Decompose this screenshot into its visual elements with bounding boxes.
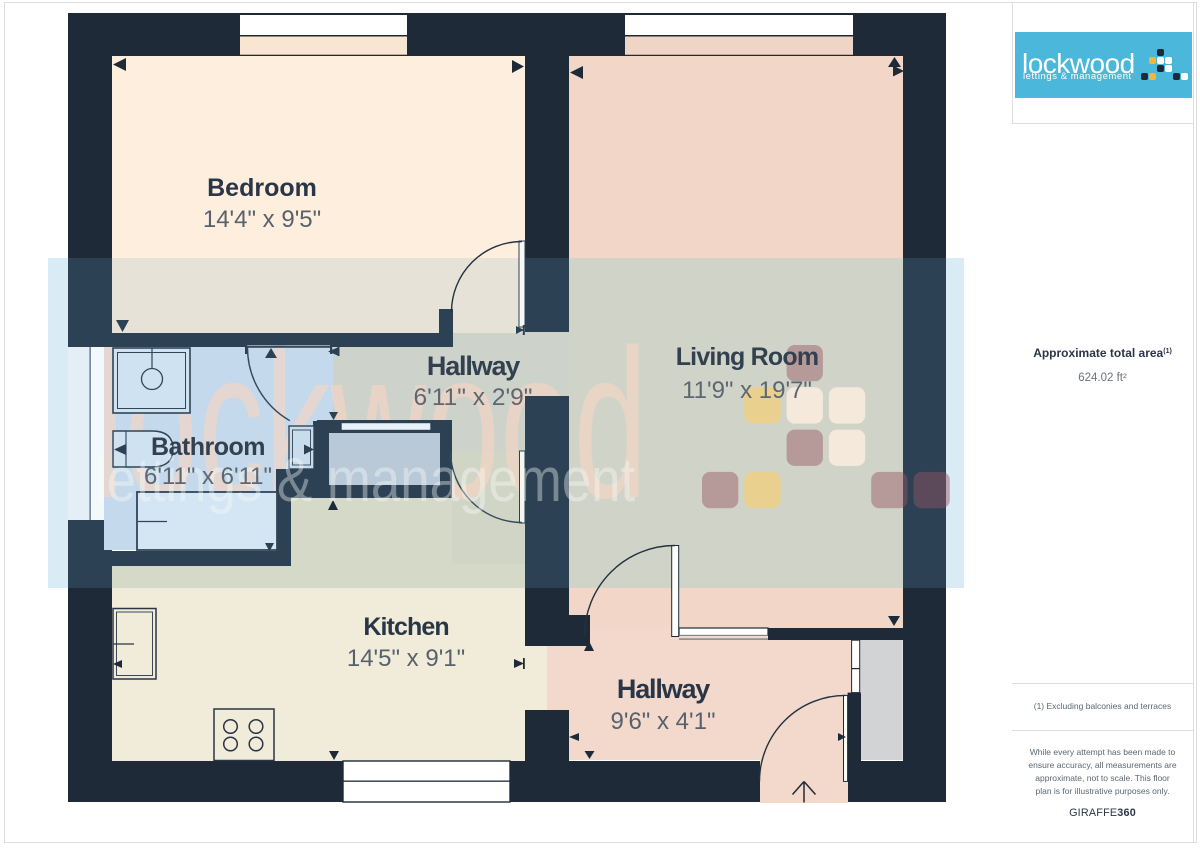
- svg-text:Living Room: Living Room: [676, 343, 819, 371]
- svg-text:11'9" x 19'7": 11'9" x 19'7": [682, 377, 812, 404]
- svg-text:6'11" x 6'11": 6'11" x 6'11": [144, 463, 272, 490]
- svg-text:Hallway: Hallway: [427, 351, 520, 381]
- svg-text:Hallway: Hallway: [617, 674, 710, 704]
- svg-text:14'4" x 9'5": 14'4" x 9'5": [203, 206, 321, 233]
- svg-text:Kitchen: Kitchen: [363, 613, 448, 641]
- svg-text:9'6" x 4'1": 9'6" x 4'1": [611, 708, 716, 735]
- svg-text:6'11" x 2'9": 6'11" x 2'9": [414, 384, 533, 411]
- svg-text:Bedroom: Bedroom: [207, 174, 317, 202]
- svg-text:14'5" x 9'1": 14'5" x 9'1": [347, 645, 465, 672]
- svg-text:Bathroom: Bathroom: [151, 433, 265, 461]
